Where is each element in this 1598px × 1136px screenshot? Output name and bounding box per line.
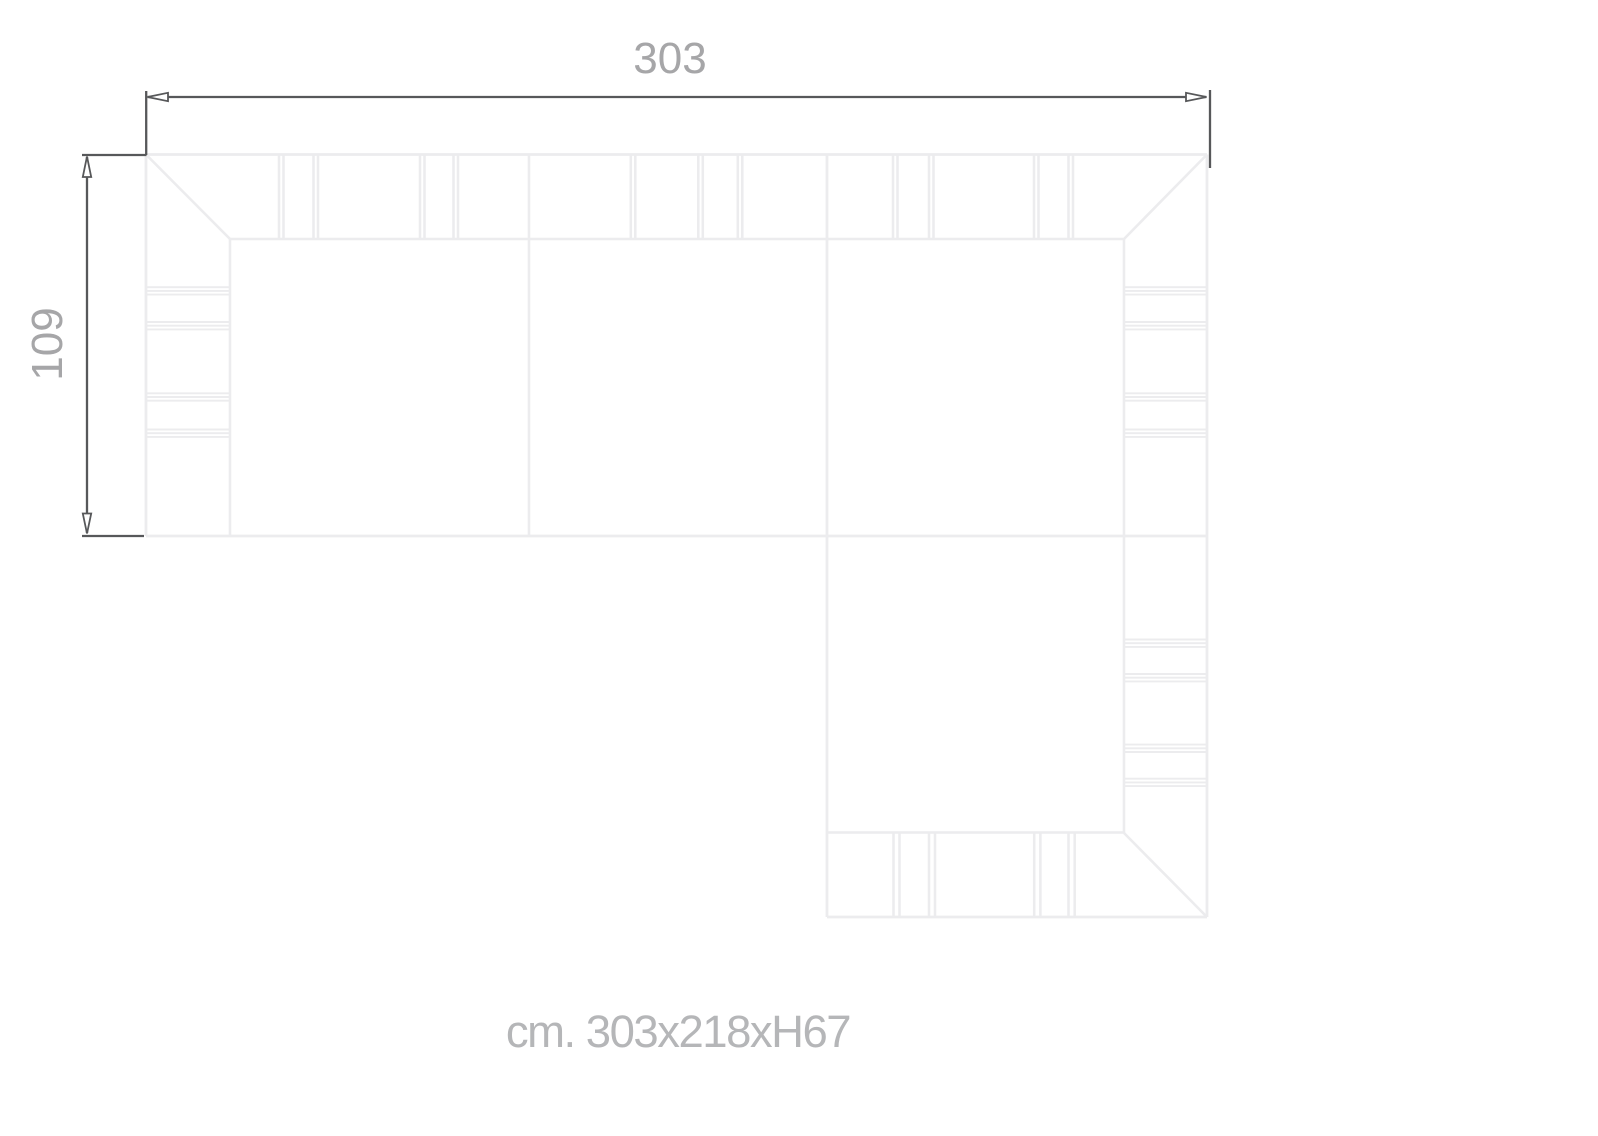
svg-text:109: 109 — [23, 307, 72, 380]
svg-text:cm. 303x218xH67: cm. 303x218xH67 — [506, 1006, 850, 1057]
svg-text:303: 303 — [633, 34, 706, 83]
